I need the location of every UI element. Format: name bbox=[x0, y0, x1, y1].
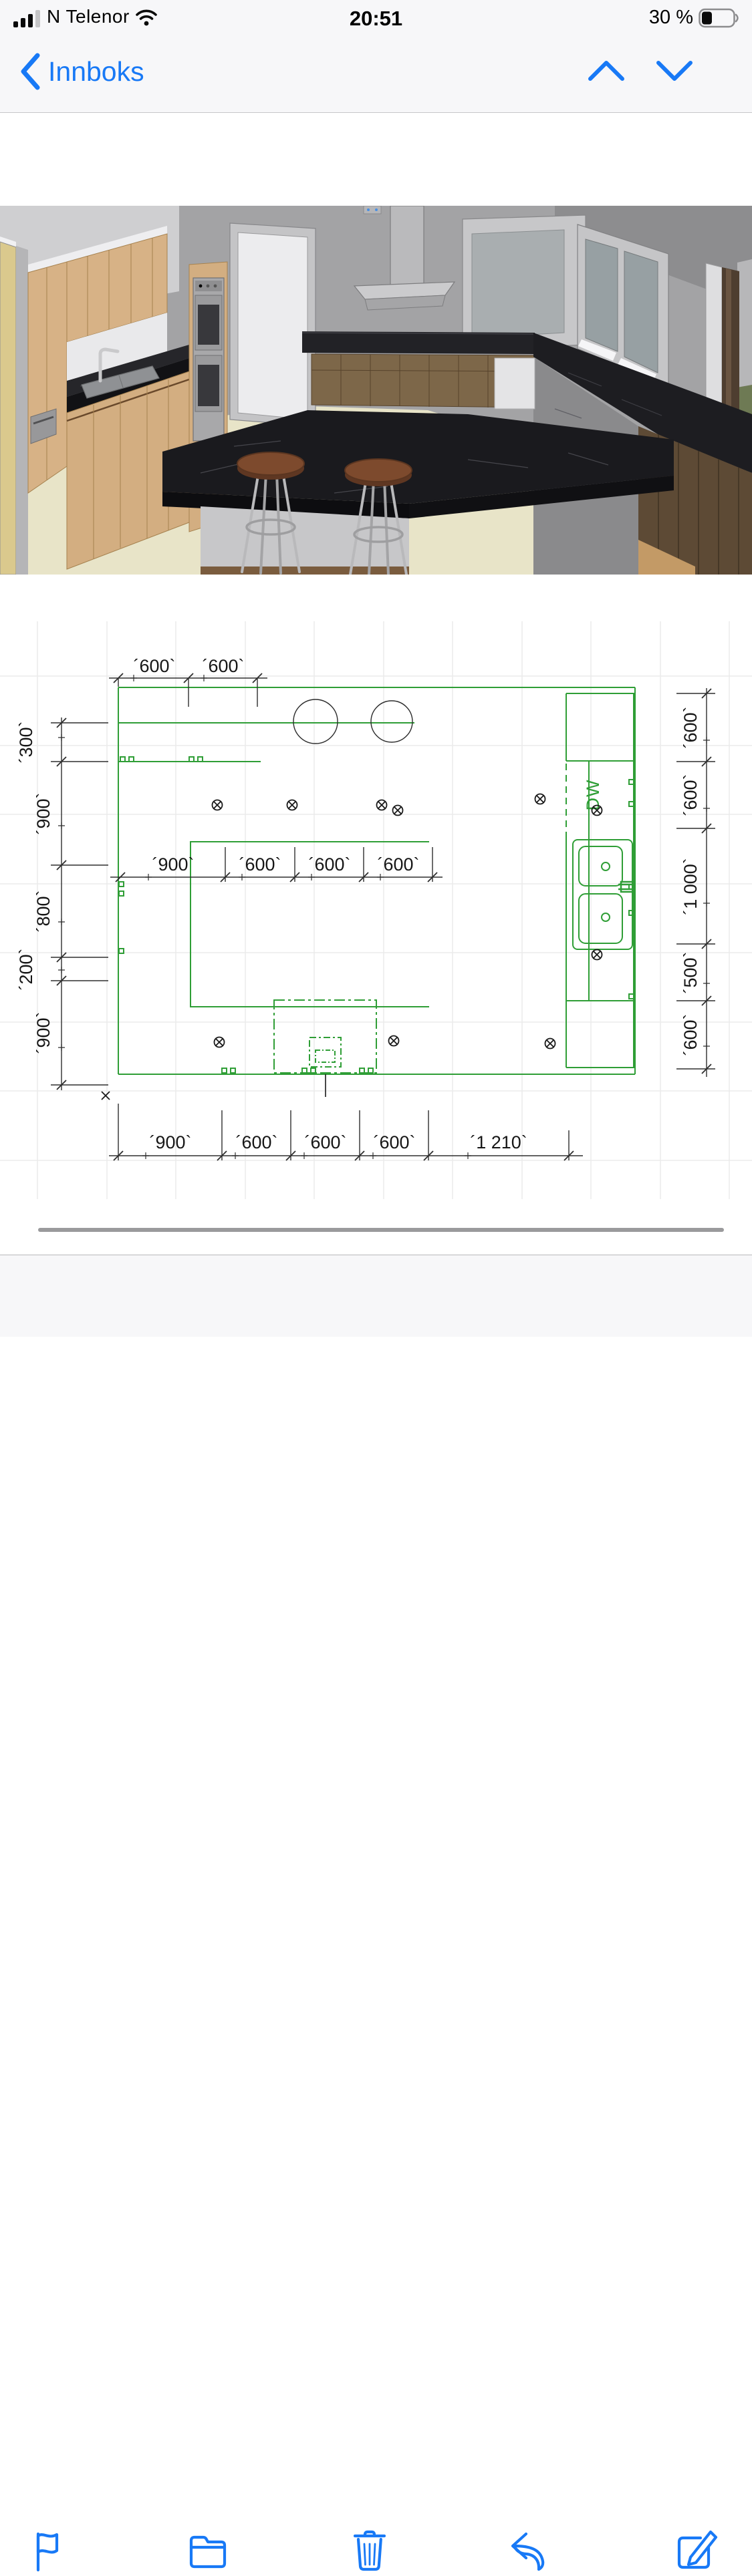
dim-label: ´1 210` bbox=[470, 1132, 527, 1152]
kitchen-floor-plan[interactable]: DW ´600` ´600` ´900` ´600` ´600` ´600` ´… bbox=[0, 580, 752, 1211]
dim-label: ´800` bbox=[33, 890, 53, 932]
folder-button[interactable] bbox=[186, 2529, 230, 2573]
trash-button[interactable] bbox=[348, 2529, 392, 2573]
mail-nav-bar: Innboks bbox=[0, 37, 752, 112]
flag-icon bbox=[30, 2529, 74, 2573]
wall-vent bbox=[364, 206, 381, 214]
dim-label: ´600` bbox=[377, 854, 419, 874]
dim-label: ´900` bbox=[152, 854, 194, 874]
dim-label: ´900` bbox=[149, 1132, 191, 1152]
chevron-left-icon bbox=[19, 52, 41, 91]
dim-label: ´600` bbox=[680, 774, 701, 816]
dim-label: ´600` bbox=[202, 656, 244, 676]
left-wall-section bbox=[0, 236, 28, 575]
chevron-up-icon bbox=[590, 63, 622, 79]
compose-icon bbox=[675, 2529, 719, 2573]
clock: 20:51 bbox=[0, 7, 752, 31]
dim-label: ´300` bbox=[16, 721, 36, 763]
dim-label: ´600` bbox=[239, 854, 281, 874]
reply-button[interactable] bbox=[506, 2529, 550, 2573]
compose-button[interactable] bbox=[675, 2529, 719, 2573]
cross-marker bbox=[102, 1092, 110, 1100]
chevron-down-icon bbox=[658, 63, 691, 79]
sink-symbol bbox=[573, 840, 633, 949]
page-separator bbox=[38, 1228, 724, 1232]
dim-label: ´500` bbox=[680, 951, 701, 993]
status-bar: N Telenor 20:51 30 % bbox=[0, 0, 752, 37]
dimension-lines bbox=[51, 673, 715, 1160]
status-and-nav-bar: N Telenor 20:51 30 % Innboks bbox=[0, 0, 752, 113]
dim-label: ´600` bbox=[680, 1013, 701, 1056]
dim-label: ´900` bbox=[33, 792, 53, 834]
dim-label: ´600` bbox=[680, 706, 701, 748]
island-outline bbox=[274, 1000, 376, 1073]
reply-arrow-icon bbox=[506, 2529, 550, 2573]
back-to-inbox-button[interactable]: Innboks bbox=[19, 52, 144, 91]
hob-circles bbox=[293, 699, 412, 744]
dim-label: ´600` bbox=[308, 854, 350, 874]
battery-icon bbox=[699, 8, 740, 28]
outlet-symbols bbox=[213, 794, 602, 1049]
dim-label: ´600` bbox=[373, 1132, 415, 1152]
battery-percent: 30 % bbox=[649, 7, 693, 29]
previous-message-button[interactable] bbox=[587, 57, 626, 84]
flag-button[interactable] bbox=[30, 2529, 74, 2573]
trash-icon bbox=[348, 2529, 392, 2573]
next-message-button[interactable] bbox=[655, 57, 694, 84]
wall-board bbox=[463, 215, 586, 350]
back-label: Innboks bbox=[48, 56, 144, 88]
folder-icon bbox=[186, 2529, 230, 2573]
dim-label: ´600` bbox=[304, 1132, 346, 1152]
dim-label: ´900` bbox=[33, 1011, 53, 1054]
mail-toolbar bbox=[0, 1255, 752, 1337]
doorway bbox=[230, 223, 316, 426]
dim-label: ´1 000` bbox=[680, 858, 701, 915]
dim-label: ´600` bbox=[133, 656, 175, 676]
dim-label: ´600` bbox=[235, 1132, 277, 1152]
kitchen-3d-render[interactable] bbox=[0, 206, 752, 575]
dim-label: ´200` bbox=[16, 948, 36, 990]
